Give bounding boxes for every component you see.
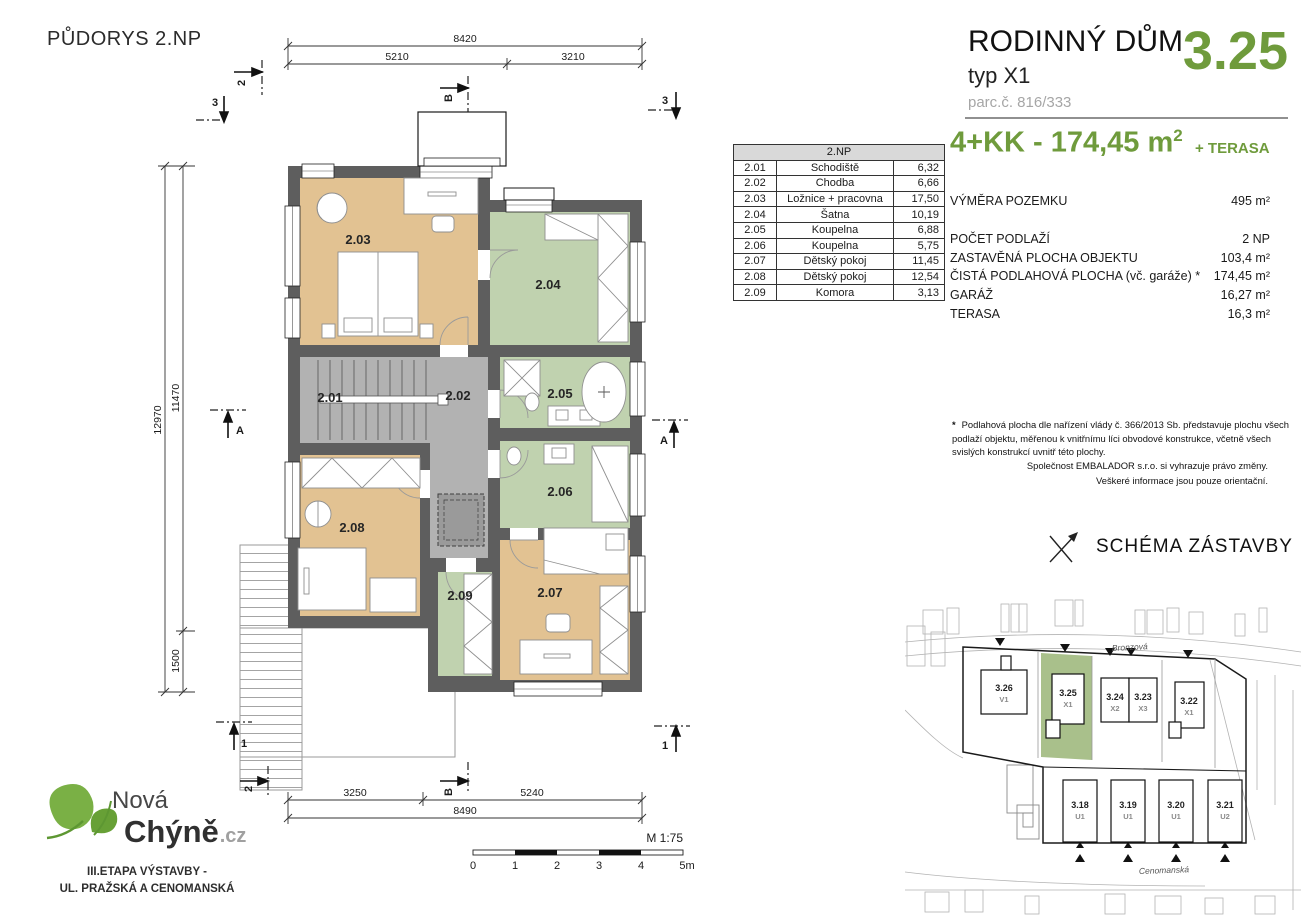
north-arrow-icon: [1044, 524, 1088, 568]
room-label-203: 2.03: [345, 232, 370, 247]
room-table: 2.NP 2.01Schodiště6,32 2.02Chodba6,66 2.…: [733, 144, 945, 301]
marker-b-bottom: B: [443, 788, 455, 796]
spec-row: TERASA16,3 m²: [950, 304, 1270, 323]
parcel-number: parc.č. 816/333: [968, 94, 1071, 111]
logo-word-chyne: Chýně.cz: [124, 814, 246, 849]
dim-bottom-right: 5240: [520, 787, 544, 799]
svg-text:3.22: 3.22: [1180, 696, 1198, 706]
site-houses-top: [981, 656, 1204, 738]
room-label-209: 2.09: [447, 588, 472, 603]
svg-text:3.25: 3.25: [1059, 688, 1077, 698]
site-houses-bottom: [1063, 780, 1242, 842]
street-bronzova: Bronzová: [1112, 641, 1149, 653]
marker-3-left: 3: [212, 97, 218, 109]
room-label-204: 2.04: [535, 277, 561, 292]
layout-size: 4+KK - 174,45 m2: [950, 126, 1183, 160]
svg-text:X3: X3: [1138, 704, 1147, 713]
room-label-202: 2.02: [445, 388, 470, 403]
spec-row: GARÁŽ16,27 m²: [950, 286, 1270, 305]
house-type: typ X1: [968, 63, 1030, 89]
spec-row: VÝMĚRA POZEMKU495 m²: [950, 192, 1270, 211]
divider: [965, 117, 1288, 119]
svg-text:V1: V1: [999, 695, 1008, 704]
room-label-207: 2.07: [537, 585, 562, 600]
svg-text:X1: X1: [1063, 700, 1072, 709]
room-label-208: 2.08: [339, 520, 364, 535]
dim-left-upper: 11470: [170, 384, 182, 413]
marker-3-right: 3: [662, 95, 668, 107]
terrace-note: + TERASA: [1195, 140, 1270, 157]
table-row: 2.08Dětský pokoj12,54: [734, 269, 945, 285]
marker-b-top: B: [443, 94, 455, 102]
svg-text:X2: X2: [1110, 704, 1119, 713]
room-table-header: 2.NP: [734, 145, 945, 161]
table-row: 2.03Ložnice + pracovna17,50: [734, 191, 945, 207]
shaft: [438, 494, 484, 546]
marker-a-right: A: [660, 435, 668, 447]
house-number-badge: 3.25: [1140, 20, 1288, 82]
dim-bottom-left: 3250: [343, 787, 367, 799]
svg-text:3.18: 3.18: [1071, 800, 1089, 810]
marker-1-right: 1: [662, 740, 668, 752]
scale-1: 1: [512, 860, 518, 872]
table-row: 2.02Chodba6,66: [734, 176, 945, 192]
dim-bottom-total: 8490: [453, 805, 477, 817]
table-row: 2.05Koupelna6,88: [734, 222, 945, 238]
dim-top-left: 5210: [385, 51, 409, 63]
svg-text:3.23: 3.23: [1134, 692, 1152, 702]
scale-4: 4: [638, 860, 644, 872]
svg-text:U2: U2: [1220, 812, 1230, 821]
marker-1-left: 1: [241, 738, 247, 750]
site-entry-arrows-top: [995, 638, 1193, 658]
svg-text:U1: U1: [1075, 812, 1085, 821]
dim-left-total: 12970: [152, 405, 164, 434]
logo-tagline: III.ETAPA VÝSTAVBY - UL. PRAŽSKÁ A CENOM…: [36, 864, 258, 899]
scale-3: 3: [596, 860, 602, 872]
logo-word-nova: Nová: [112, 787, 169, 814]
table-row: 2.01Schodiště6,32: [734, 160, 945, 176]
room-label-206: 2.06: [547, 484, 572, 499]
table-row: 2.09Komora3,13: [734, 285, 945, 301]
sup-2: 2: [1173, 126, 1182, 145]
svg-text:3.26: 3.26: [995, 683, 1013, 693]
room-label-205: 2.05: [547, 386, 572, 401]
schema-title: SCHÉMA ZÁSTAVBY: [1096, 536, 1293, 558]
spec-row: ČISTÁ PODLAHOVÁ PLOCHA (vč. garáže) *174…: [950, 267, 1270, 286]
scale-bar: M 1:75 0 1 2 3 4 5m: [470, 831, 695, 872]
spec-row: ZASTAVĚNÁ PLOCHA OBJEKTU103,4 m²: [950, 248, 1270, 267]
svg-text:U1: U1: [1171, 812, 1181, 821]
spec-list: VÝMĚRA POZEMKU495 m² POČET PODLAŽÍ2 NP Z…: [950, 192, 1270, 323]
leaf-icon: [47, 784, 117, 838]
scale-label: M 1:75: [646, 831, 683, 845]
svg-text:3.21: 3.21: [1216, 800, 1234, 810]
site-plan: 3.26 V1 3.25 X1 3.24 X2 3.23 X3 3.22 X1: [905, 590, 1301, 917]
dim-left-lower: 1500: [170, 649, 182, 673]
table-row: 2.07Dětský pokoj11,45: [734, 254, 945, 270]
drawing-sheet: PŮDORYS 2.NP: [0, 0, 1301, 917]
scale-5m: 5m: [679, 860, 694, 872]
dim-top-total: 8420: [453, 33, 477, 45]
scale-2: 2: [554, 860, 560, 872]
street-cenomanska: Cenomanská: [1139, 864, 1190, 876]
site-neighbor-buildings: [1007, 765, 1039, 839]
spec-row: POČET PODLAŽÍ2 NP: [950, 230, 1270, 249]
footnote-asterisk: *: [952, 419, 956, 430]
dim-top-right: 3210: [561, 51, 585, 63]
table-row: 2.06Koupelna5,75: [734, 238, 945, 254]
site-entry-arrows-bottom: [1075, 842, 1230, 862]
svg-text:X1: X1: [1184, 708, 1193, 717]
marker-a-left: A: [236, 425, 244, 437]
scale-0: 0: [470, 860, 476, 872]
footnote: *Podlahová plocha dle nařízení vlády č. …: [952, 418, 1290, 459]
novachyne-logo: Nová Chýně.cz: [40, 772, 255, 864]
marker-2-top: 2: [236, 80, 248, 86]
disclaimer: Společnost EMBALADOR s.r.o. si vyhrazuje…: [948, 459, 1268, 488]
table-row: 2.04Šatna10,19: [734, 207, 945, 223]
svg-text:3.20: 3.20: [1167, 800, 1185, 810]
room-label-201: 2.01: [317, 390, 342, 405]
svg-text:U1: U1: [1123, 812, 1133, 821]
svg-text:3.19: 3.19: [1119, 800, 1137, 810]
svg-text:3.24: 3.24: [1106, 692, 1124, 702]
